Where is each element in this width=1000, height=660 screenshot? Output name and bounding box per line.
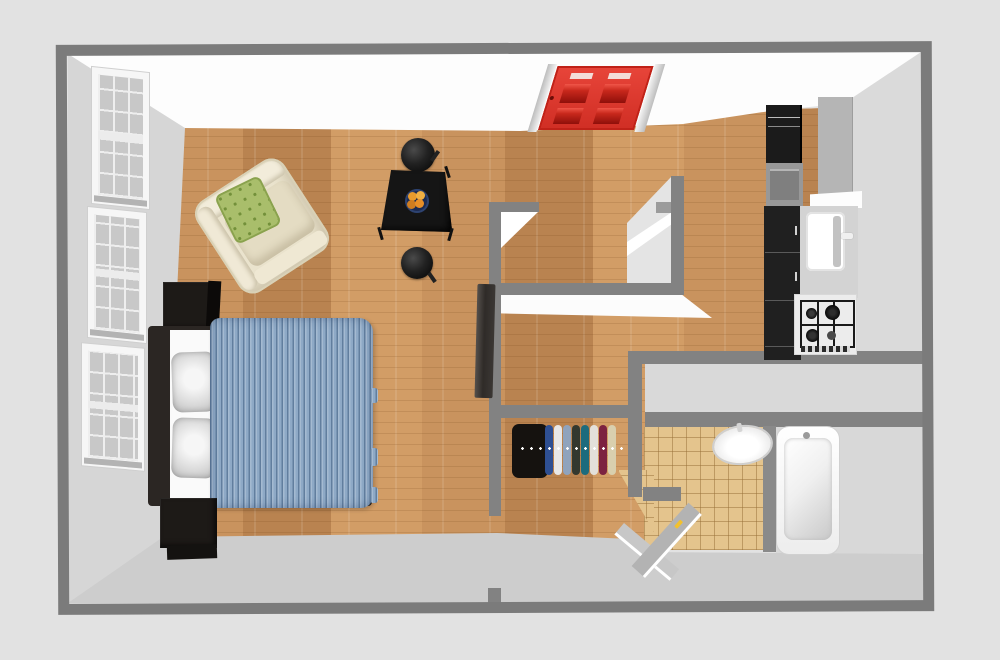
floor-plan-stage: [0, 0, 1000, 660]
outer-wall-border: [56, 41, 934, 615]
